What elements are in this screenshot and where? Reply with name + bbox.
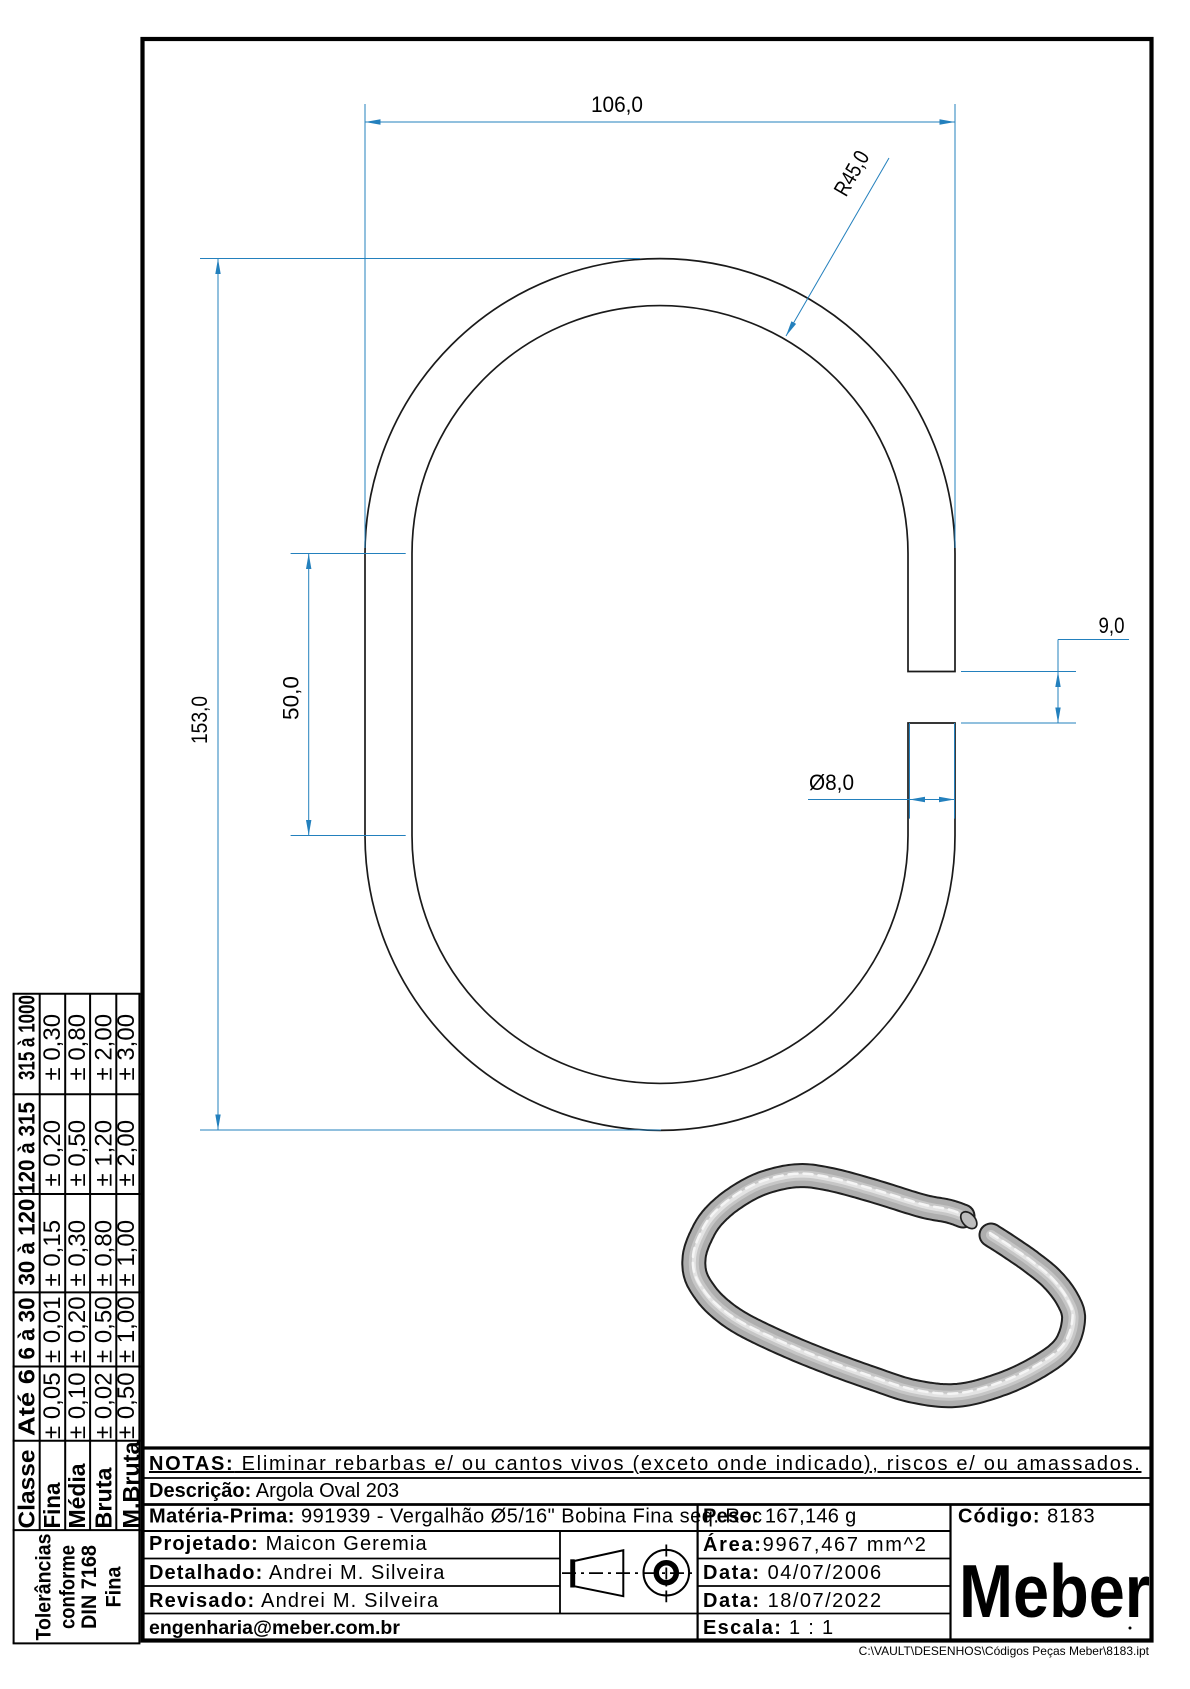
svg-text:± 1,00: ± 1,00 [113,1220,140,1287]
svg-text:Data: 04/07/2006: Data: 04/07/2006 [703,1562,883,1584]
svg-text:Detalhado: Andrei M. Silveira: Detalhado: Andrei M. Silveira [149,1562,445,1584]
svg-text:DIN 7168: DIN 7168 [78,1545,101,1629]
svg-text:Área:9967,467 mm^2: Área:9967,467 mm^2 [703,1533,928,1556]
svg-text:± 1,00: ± 1,00 [113,1296,140,1363]
svg-text:9,0: 9,0 [1099,613,1125,638]
svg-text:NOTAS: Eliminar rebarbas e/ ou: NOTAS: Eliminar rebarbas e/ ou cantos vi… [149,1453,1142,1475]
svg-text:Matéria-Prima: 991939 - Vergal: Matéria-Prima: 991939 - Vergalhão Ø5/16"… [149,1506,763,1528]
svg-text:± 0,30: ± 0,30 [39,1014,66,1081]
svg-text:Bruta: Bruta [90,1467,116,1529]
svg-text:Ø8,0: Ø8,0 [809,770,854,795]
svg-text:120 à 315: 120 à 315 [14,1102,40,1194]
svg-text:M.Bruta: M.Bruta [118,1441,144,1529]
svg-text:Escala: 1 : 1: Escala: 1 : 1 [703,1617,834,1639]
svg-text:± 0,80: ± 0,80 [64,1014,91,1081]
svg-text:Fina: Fina [39,1482,65,1529]
svg-text:± 0,05: ± 0,05 [39,1372,66,1439]
svg-text:Até 6: Até 6 [14,1369,40,1436]
svg-text:Revisado: Andrei M. Silveira: Revisado: Andrei M. Silveira [149,1590,439,1612]
svg-text:Projetado: Maicon Geremia: Projetado: Maicon Geremia [149,1533,428,1555]
svg-text:6 à 30: 6 à 30 [14,1298,40,1360]
svg-text:± 0,15: ± 0,15 [39,1220,66,1287]
svg-text:30 à 120: 30 à 120 [14,1199,40,1286]
svg-text:C:\VAULT\DESENHOS\Códigos Peça: C:\VAULT\DESENHOS\Códigos Peças Meber\81… [859,1644,1150,1658]
svg-text:± 0,50: ± 0,50 [64,1120,91,1187]
svg-text:Peso: 167,146 g: Peso: 167,146 g [703,1506,857,1528]
svg-text:Data: 18/07/2022: Data: 18/07/2022 [703,1590,883,1612]
svg-text:Código: 8183: Código: 8183 [958,1506,1096,1528]
svg-text:± 0,20: ± 0,20 [64,1296,91,1363]
svg-text:Média: Média [64,1463,90,1529]
svg-text:± 2,00: ± 2,00 [113,1120,140,1187]
svg-text:engenharia@meber.com.br: engenharia@meber.com.br [149,1617,400,1639]
svg-text:± 0,01: ± 0,01 [39,1296,66,1363]
svg-text:Descrição: Argola Oval 203: Descrição: Argola Oval 203 [149,1480,399,1502]
svg-text:Classe: Classe [14,1450,40,1529]
svg-text:50,0: 50,0 [279,676,304,720]
svg-text:Fina: Fina [103,1566,126,1607]
svg-text:conforme: conforme [57,1545,80,1629]
svg-text:± 3,00: ± 3,00 [113,1014,140,1081]
svg-text:± 0,50: ± 0,50 [113,1372,140,1439]
svg-text:153,0: 153,0 [187,696,212,744]
svg-text:Tolerâncias: Tolerâncias [33,1534,56,1641]
svg-text:± 0,10: ± 0,10 [64,1372,91,1439]
svg-text:± 0,30: ± 0,30 [64,1220,91,1287]
svg-text:315 à 1000: 315 à 1000 [14,995,40,1080]
svg-text:± 0,20: ± 0,20 [39,1120,66,1187]
svg-text:106,0: 106,0 [591,92,643,117]
svg-text:Meber: Meber [959,1549,1150,1633]
